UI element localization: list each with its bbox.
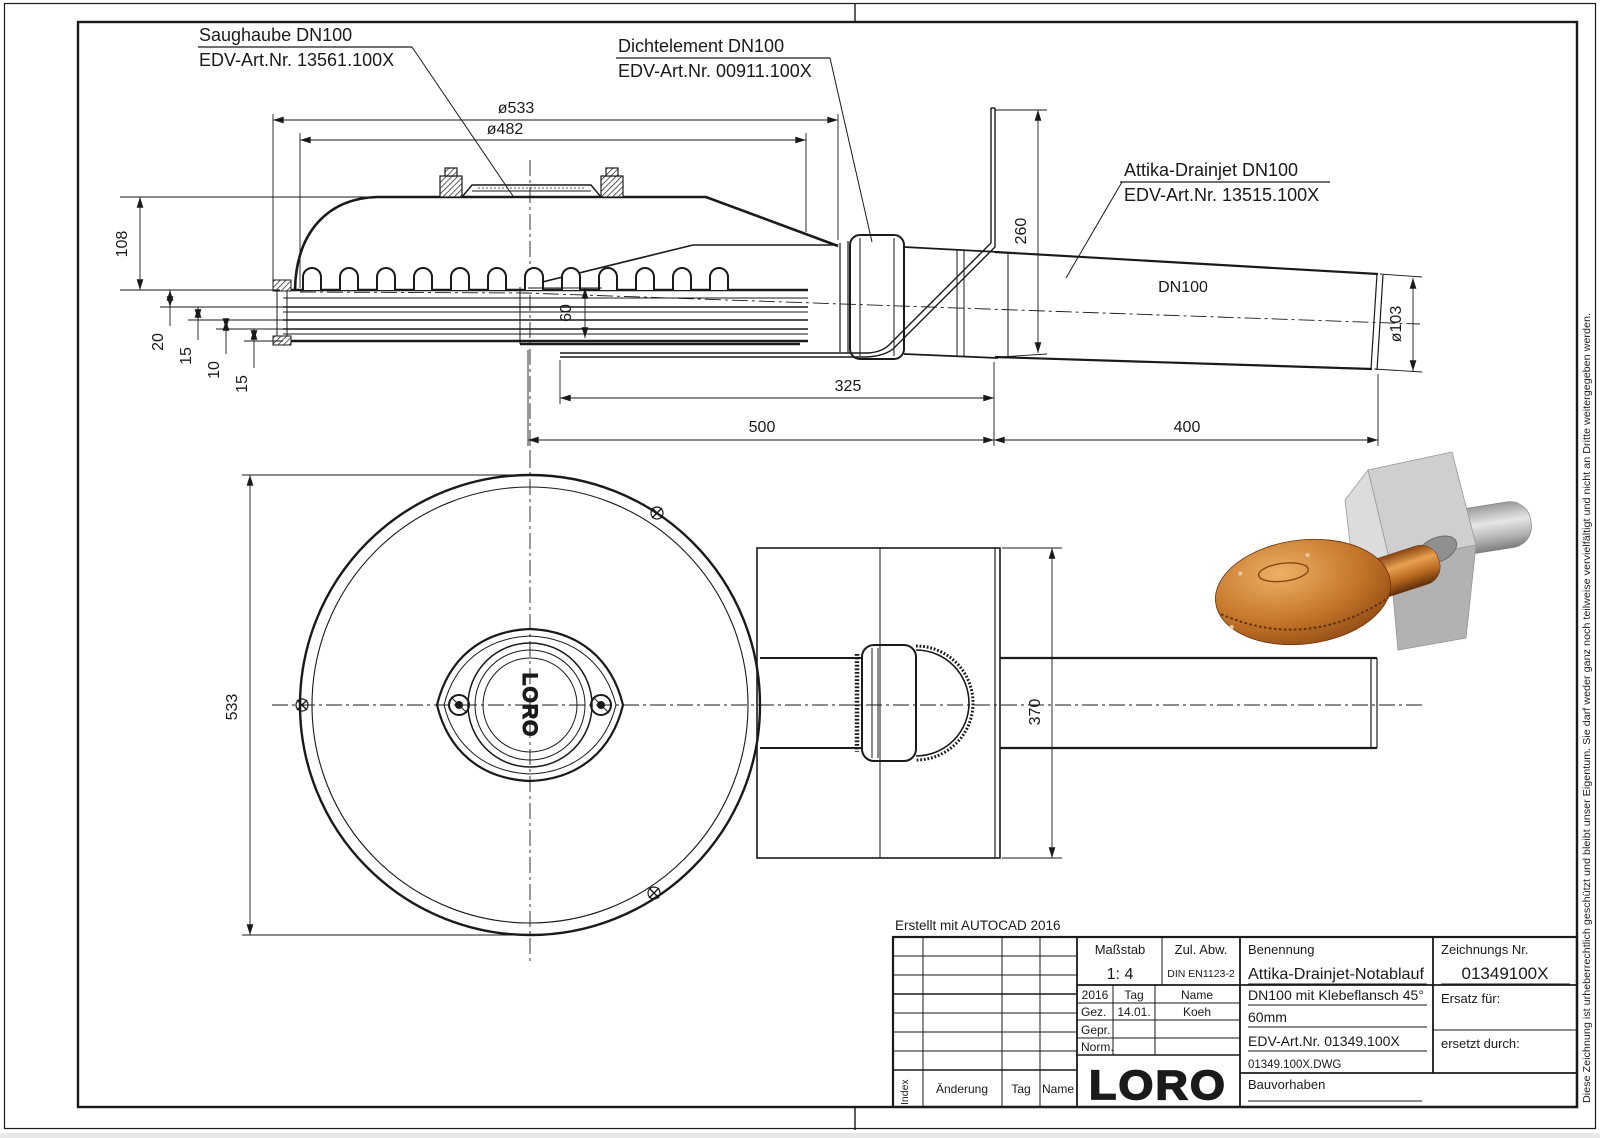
rev-col-index: Index <box>899 1079 911 1105</box>
desc-line4: 01349.100X.DWG <box>1248 1059 1341 1071</box>
dim-plate-10: 10 <box>206 361 223 379</box>
rev-col-name: Name <box>1042 1082 1074 1096</box>
dichtelement-leader <box>830 58 872 242</box>
zeichnungs-nr-value: 01349100X <box>1462 964 1549 983</box>
dim-dia-inner: ø482 <box>487 121 524 138</box>
desc-line3: EDV-Art.Nr. 01349.100X <box>1248 1033 1400 1049</box>
hood-knobs <box>440 168 623 197</box>
hub-logo-text: LORO <box>518 673 541 738</box>
company-logo: LORO <box>1089 1062 1227 1108</box>
rim-bolts <box>296 507 663 899</box>
rev-col-tag: Tag <box>1011 1082 1030 1096</box>
flange-stack <box>283 290 808 341</box>
dim-plan-dia: 533 <box>224 694 241 721</box>
dim-len-500: 500 <box>749 419 776 436</box>
product-render-3d <box>1209 452 1534 654</box>
gez-tag: 14.01. <box>1117 1005 1150 1019</box>
benennung-value: Attika-Drainjet-Notablauf <box>1248 966 1425 983</box>
copyright-note: Diese Zeichnung ist urheberrechtlich ges… <box>1581 313 1593 1103</box>
saughaube-label-line2: EDV-Art.Nr. 13561.100X <box>199 50 394 70</box>
attika-label-line1: Attika-Drainjet DN100 <box>1124 160 1298 180</box>
zul-abw-label: Zul. Abw. <box>1175 942 1228 957</box>
pipe-dn-label: DN100 <box>1158 279 1208 296</box>
dim-dia-outer: ø533 <box>498 100 535 117</box>
benennung-label: Benennung <box>1248 942 1315 957</box>
ersatz-fuer-label: Ersatz für: <box>1441 991 1500 1006</box>
dim-plate-15a: 15 <box>178 347 195 365</box>
dim-plan-plate-height: 370 <box>1027 699 1044 726</box>
outlet-pipe: DN100 <box>995 252 1383 370</box>
dim-len-325: 325 <box>835 378 862 395</box>
dim-plate-15b: 15 <box>234 375 251 393</box>
part-callouts: Saughaube DN100 EDV-Art.Nr. 13561.100X D… <box>198 25 1330 278</box>
desc-line1: DN100 mit Klebeflansch 45° <box>1248 987 1424 1003</box>
approval-col-name: Name <box>1181 988 1213 1002</box>
dim-len-400: 400 <box>1174 419 1201 436</box>
bauvorhaben-label: Bauvorhaben <box>1248 1077 1325 1092</box>
side-view: DN100 ø533 ø482 108 20 <box>114 25 1422 452</box>
plan-view: LORO 533 <box>224 452 1425 962</box>
approval-col-tag: Tag <box>1124 988 1143 1002</box>
inlet-slots <box>303 268 728 290</box>
zul-abw-value: DIN EN1123-2 <box>1167 968 1235 980</box>
seal-collar <box>840 235 998 359</box>
rev-col-aenderung: Änderung <box>936 1082 988 1096</box>
gez-name: Koeh <box>1183 1005 1211 1019</box>
ersetzt-durch-label: ersetzt durch: <box>1441 1036 1520 1051</box>
zeichnungs-nr-label: Zeichnungs Nr. <box>1441 942 1528 957</box>
masstab-value: 1: 4 <box>1107 966 1134 983</box>
masstab-label: Maßstab <box>1095 942 1146 957</box>
saughaube-label-line1: Saughaube DN100 <box>199 25 352 45</box>
attika-leader <box>1066 182 1122 278</box>
revision-table: Index Änderung Tag Name <box>893 937 1077 1107</box>
dim-pipe-dia: ø103 <box>1388 306 1405 343</box>
gez-label: Gez. <box>1081 1005 1106 1019</box>
dim-hood-height: 108 <box>114 231 131 258</box>
approval-year: 2016 <box>1082 988 1109 1002</box>
dim-duct-height: 60 <box>558 304 575 322</box>
dichtelement-label-line1: Dichtelement DN100 <box>618 36 784 56</box>
title-block: Erstellt mit AUTOCAD 2016 Index Änderung… <box>893 918 1577 1108</box>
attika-label-line2: EDV-Art.Nr. 13515.100X <box>1124 185 1319 205</box>
drawing-sheet: Diese Zeichnung ist urheberrechtlich ges… <box>0 0 1600 1133</box>
gepr-label: Gepr. <box>1081 1023 1110 1037</box>
created-with-note: Erstellt mit AUTOCAD 2016 <box>895 918 1061 933</box>
dichtelement-label-line2: EDV-Art.Nr. 00911.100X <box>618 61 812 81</box>
dim-flange-height: 260 <box>1013 218 1030 245</box>
norm-label: Norm. <box>1081 1040 1114 1054</box>
dim-plate-20: 20 <box>150 333 167 351</box>
desc-line2: 60mm <box>1248 1009 1287 1025</box>
